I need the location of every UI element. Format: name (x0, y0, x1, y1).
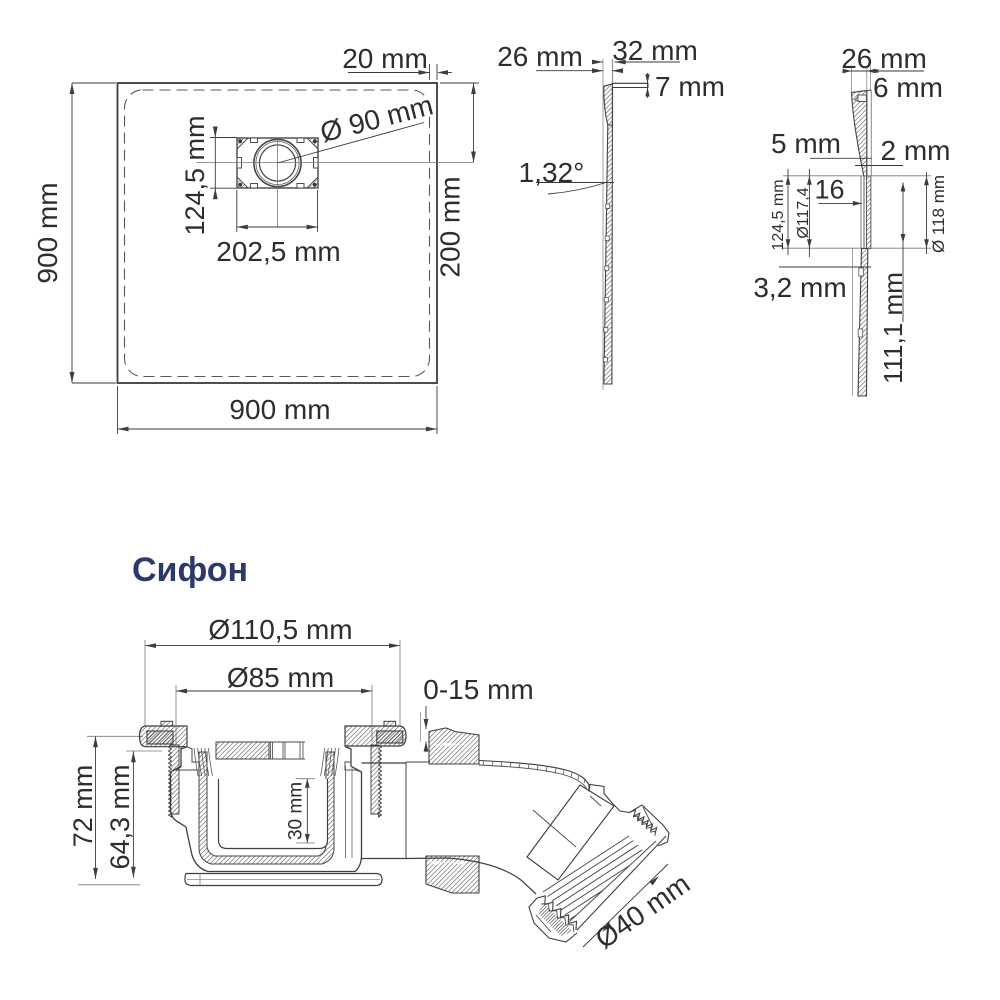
svg-text:124,5 mm: 124,5 mm (180, 115, 210, 235)
svg-text:3,2 mm: 3,2 mm (753, 272, 846, 303)
svg-text:26 mm: 26 mm (841, 43, 927, 74)
svg-text:900 mm: 900 mm (229, 394, 330, 425)
svg-text:64,3 mm: 64,3 mm (105, 764, 135, 869)
svg-text:7 mm: 7 mm (655, 71, 725, 102)
svg-text:200 mm: 200 mm (435, 176, 466, 277)
svg-text:16: 16 (814, 175, 844, 205)
svg-text:2 mm: 2 mm (881, 135, 951, 166)
svg-text:Ø 90 mm: Ø 90 mm (317, 89, 436, 148)
svg-text:Ø117,4: Ø117,4 (795, 187, 812, 238)
svg-text:Ø110,5 mm: Ø110,5 mm (208, 614, 352, 645)
svg-text:6 mm: 6 mm (873, 72, 943, 103)
svg-text:Сифон: Сифон (132, 551, 248, 589)
svg-text:202,5 mm: 202,5 mm (216, 236, 341, 267)
svg-text:111,1 mm: 111,1 mm (878, 272, 908, 384)
svg-text:20 mm: 20 mm (342, 43, 428, 74)
svg-text:5 mm: 5 mm (771, 128, 841, 159)
svg-text:26 mm: 26 mm (497, 41, 583, 72)
svg-text:124,5 mm: 124,5 mm (770, 179, 787, 250)
svg-text:72 mm: 72 mm (68, 765, 98, 848)
svg-text:32 mm: 32 mm (612, 35, 698, 66)
svg-text:0-15 mm: 0-15 mm (423, 674, 533, 705)
svg-text:30 mm: 30 mm (286, 782, 307, 840)
svg-text:Ø 118 mm: Ø 118 mm (929, 175, 948, 253)
svg-text:900 mm: 900 mm (32, 182, 63, 283)
svg-text:1,32°: 1,32° (519, 157, 585, 188)
svg-text:Ø85 mm: Ø85 mm (227, 662, 334, 693)
